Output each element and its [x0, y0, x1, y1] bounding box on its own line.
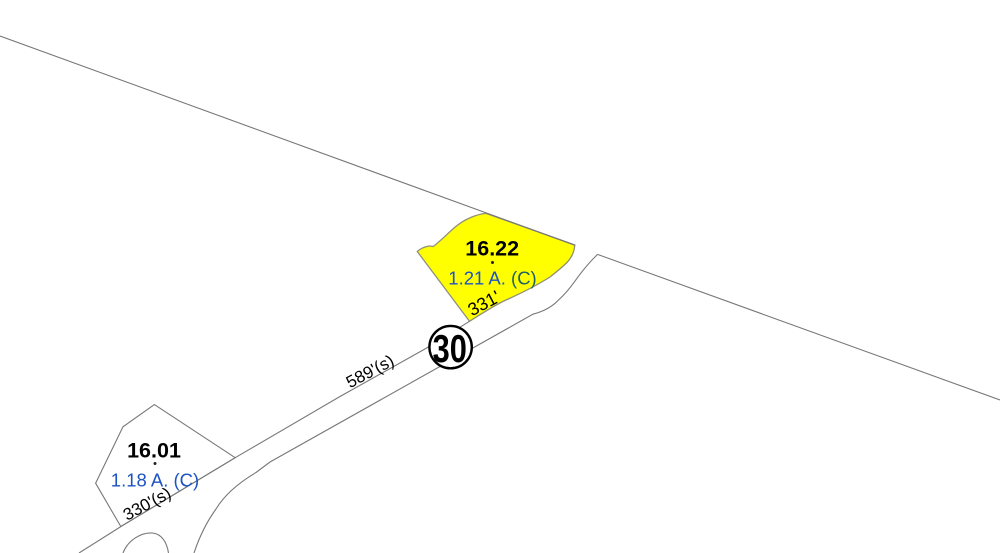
svg-text:1.21 A. (C): 1.21 A. (C)	[448, 268, 536, 289]
svg-text:30: 30	[433, 328, 467, 371]
svg-text:16.22: 16.22	[465, 237, 519, 261]
svg-text:16.01: 16.01	[127, 438, 181, 462]
svg-text:589'(s): 589'(s)	[343, 351, 397, 392]
svg-text:1.18 A. (C): 1.18 A. (C)	[111, 469, 199, 490]
